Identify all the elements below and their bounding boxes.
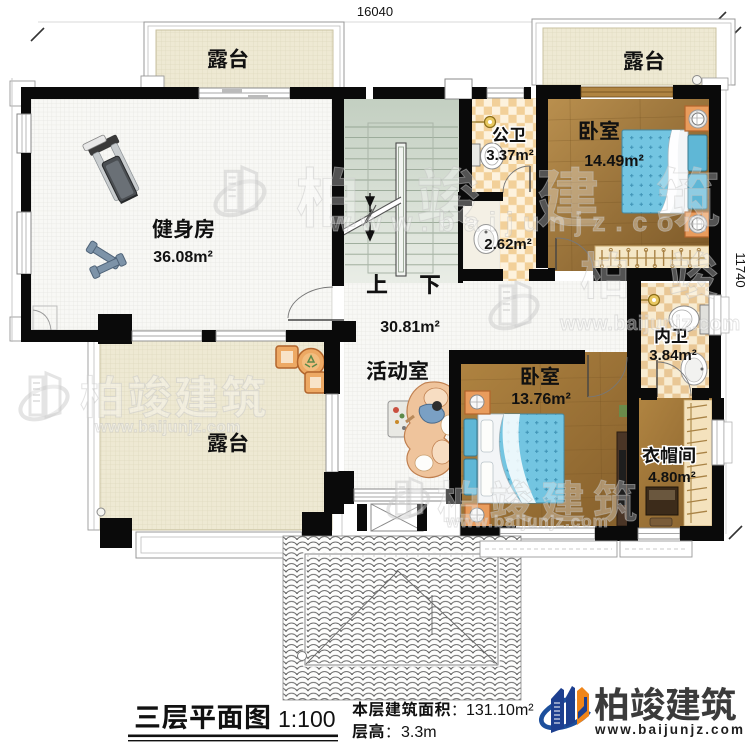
svg-text:11740: 11740 bbox=[733, 252, 748, 287]
svg-text:14.49m²: 14.49m² bbox=[584, 153, 644, 170]
svg-text:3.84m²: 3.84m² bbox=[649, 347, 697, 364]
svg-text:36.08m²: 36.08m² bbox=[153, 249, 213, 266]
svg-text:：: ： bbox=[385, 724, 400, 741]
svg-text:www.baijunjz.com: www.baijunjz.com bbox=[329, 207, 717, 237]
svg-text:2.62m²: 2.62m² bbox=[484, 236, 532, 253]
svg-text:3.37m²: 3.37m² bbox=[486, 147, 534, 164]
svg-text:3.3m: 3.3m bbox=[401, 724, 437, 741]
svg-text:4.80m²: 4.80m² bbox=[648, 469, 696, 486]
svg-text:www.baijunjz.com: www.baijunjz.com bbox=[445, 512, 609, 531]
svg-text:www.baijunjz.com: www.baijunjz.com bbox=[94, 419, 241, 436]
svg-text:www.baijunjz.com: www.baijunjz.com bbox=[559, 313, 741, 335]
svg-text:13.76m²: 13.76m² bbox=[511, 391, 571, 408]
svg-text:：: ： bbox=[451, 702, 466, 719]
svg-text:www.baijunjz.com: www.baijunjz.com bbox=[594, 722, 745, 737]
svg-text:1:100: 1:100 bbox=[278, 706, 336, 732]
svg-text:16040: 16040 bbox=[357, 4, 393, 19]
svg-text:131.10m²: 131.10m² bbox=[466, 702, 534, 719]
svg-text:30.81m²: 30.81m² bbox=[380, 319, 440, 336]
